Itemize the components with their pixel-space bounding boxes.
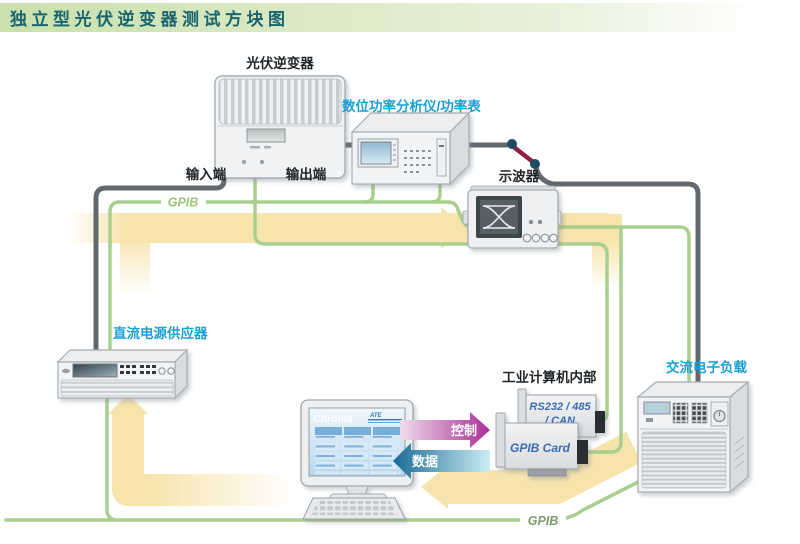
oscilloscope-device xyxy=(463,186,561,248)
switch-contact-2 xyxy=(530,159,540,169)
flow-band-top-left-drop xyxy=(135,228,152,294)
ac-load-keypad-2 xyxy=(692,403,707,423)
power-analyzer-label: 数位功率分析仪/功率表 xyxy=(342,98,481,114)
dc-supply-vents xyxy=(61,380,173,396)
ate-logo: ATE xyxy=(369,413,383,419)
data-arrow-label: 数据 xyxy=(412,454,438,469)
oscilloscope-led-2 xyxy=(538,220,542,224)
gpib-bottom-label: GPIB xyxy=(528,514,559,528)
gpib-card-bracket xyxy=(496,413,505,467)
power-analyzer-slot-opening xyxy=(439,145,444,147)
pc-keyboard xyxy=(303,498,405,519)
oscilloscope-led-1 xyxy=(529,220,533,224)
gpib-top-label: GPIB xyxy=(168,196,199,210)
pv-inverter-led-1 xyxy=(242,160,246,164)
gpib-card-connector xyxy=(577,440,588,464)
screen-fine-print xyxy=(368,422,402,423)
output-terminal-label: 输出端 xyxy=(286,166,327,182)
gpib-wire-analyzer-drop-1 xyxy=(365,182,373,202)
chroma-logo: Chroma xyxy=(313,413,353,425)
page-title: 独立型光伏逆变器测试方块图 xyxy=(10,9,290,29)
control-arrow-label: 控制 xyxy=(451,423,477,438)
pv-inverter-device xyxy=(215,76,345,178)
rs232-card-label-line1: RS232 / 485 xyxy=(529,401,591,413)
switch-contact-1 xyxy=(507,139,517,149)
gpib-card-edge-fingers xyxy=(528,469,566,476)
pv-inverter-display xyxy=(247,129,285,142)
ac-load-power-button xyxy=(646,418,653,422)
power-analyzer-drive-slot xyxy=(437,139,446,176)
input-terminal-label: 输入端 xyxy=(186,166,227,182)
ac-load-top-face xyxy=(638,382,748,397)
industrial-pc-label: 工业计算机内部 xyxy=(502,369,597,385)
pv-inverter-button-1 xyxy=(250,146,260,148)
rs232-card-connector xyxy=(595,411,605,433)
ac-load-side-face xyxy=(730,382,748,492)
dc-supply-knob-2 xyxy=(168,368,174,374)
screen-table-body xyxy=(315,436,401,474)
diagram-canvas: 独立型光伏逆变器测试方块图 xyxy=(0,0,800,544)
pv-inverter-label: 光伏逆变器 xyxy=(245,55,314,71)
dc-supply-display xyxy=(73,364,117,377)
flow-band-bottom-left-path xyxy=(128,410,292,490)
pv-inverter-led-2 xyxy=(260,160,264,164)
switch-open-icon xyxy=(507,139,540,169)
pc-monitor: Chroma ATE xyxy=(301,400,413,501)
title-bar: 独立型光伏逆变器测试方块图 xyxy=(0,3,760,32)
screen-table-header xyxy=(315,427,400,435)
flow-band-bottom-left xyxy=(108,394,292,490)
pv-inverter-button-2 xyxy=(264,146,271,148)
dc-power-supply-device xyxy=(58,350,187,398)
ac-load-keypad-1 xyxy=(673,403,688,423)
switch-blade xyxy=(515,148,533,162)
keyboard-keys xyxy=(311,501,397,515)
power-analyzer-device xyxy=(352,113,469,184)
diagram-svg: 独立型光伏逆变器测试方块图 xyxy=(0,0,800,544)
oscilloscope-label: 示波器 xyxy=(499,168,540,184)
rs232-card-bracket xyxy=(518,389,526,425)
power-analyzer-screen xyxy=(361,142,391,164)
dc-supply-top-face xyxy=(58,350,187,362)
ac-load-vents xyxy=(642,432,726,488)
gpib-wire-analyzer-drop-2 xyxy=(432,182,440,202)
ac-load-display xyxy=(644,402,670,414)
ate-logo-underline xyxy=(368,419,402,420)
gpib-card-label: GPIB Card xyxy=(510,441,571,455)
pv-inverter-heatsink-fins xyxy=(219,79,341,124)
ac-load-label: 交流电子负载 xyxy=(666,359,747,375)
ac-load-device xyxy=(638,382,748,492)
power-analyzer-top-face xyxy=(352,113,469,132)
dc-supply-power-button xyxy=(62,369,70,373)
dc-supply-knob-1 xyxy=(159,368,165,374)
dc-supply-label: 直流电源供应器 xyxy=(113,325,208,341)
